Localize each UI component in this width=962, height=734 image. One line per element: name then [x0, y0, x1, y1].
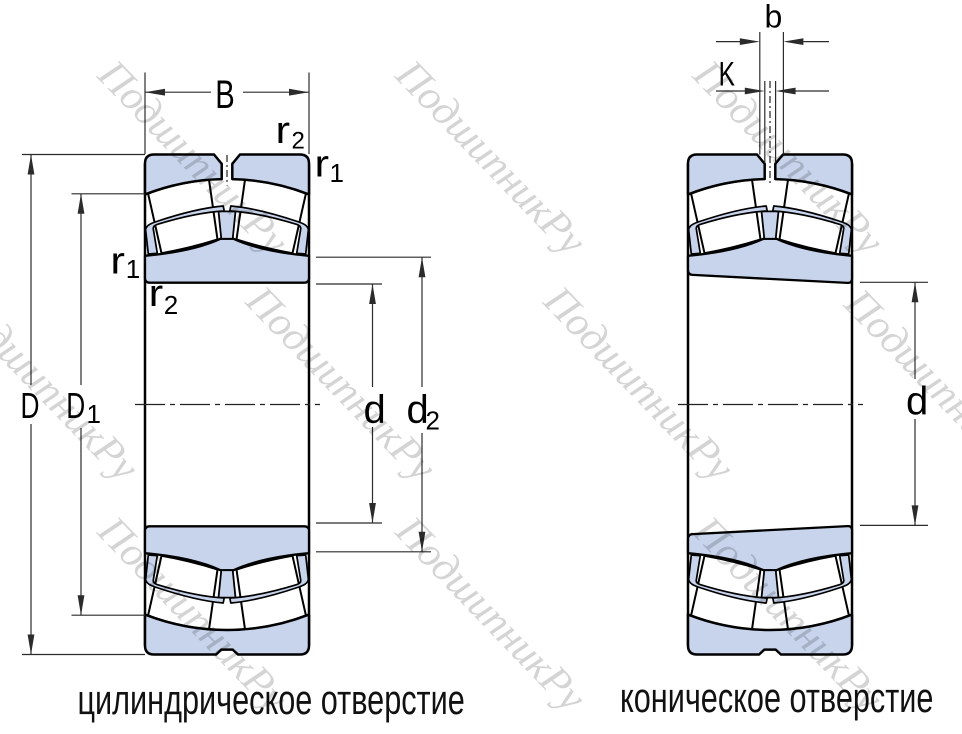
svg-text:B: B	[215, 73, 234, 118]
svg-text:r: r	[276, 109, 291, 152]
svg-text:2: 2	[292, 128, 305, 155]
svg-text:2: 2	[426, 406, 440, 436]
svg-text:коническое отверстие: коническое отверстие	[620, 674, 933, 721]
svg-text:r: r	[315, 142, 330, 185]
svg-text:1: 1	[126, 254, 140, 284]
svg-text:r: r	[110, 239, 125, 282]
svg-text:b: b	[765, 0, 783, 35]
svg-text:2: 2	[164, 290, 178, 320]
svg-text:r: r	[149, 272, 164, 315]
svg-text:1: 1	[330, 158, 344, 188]
